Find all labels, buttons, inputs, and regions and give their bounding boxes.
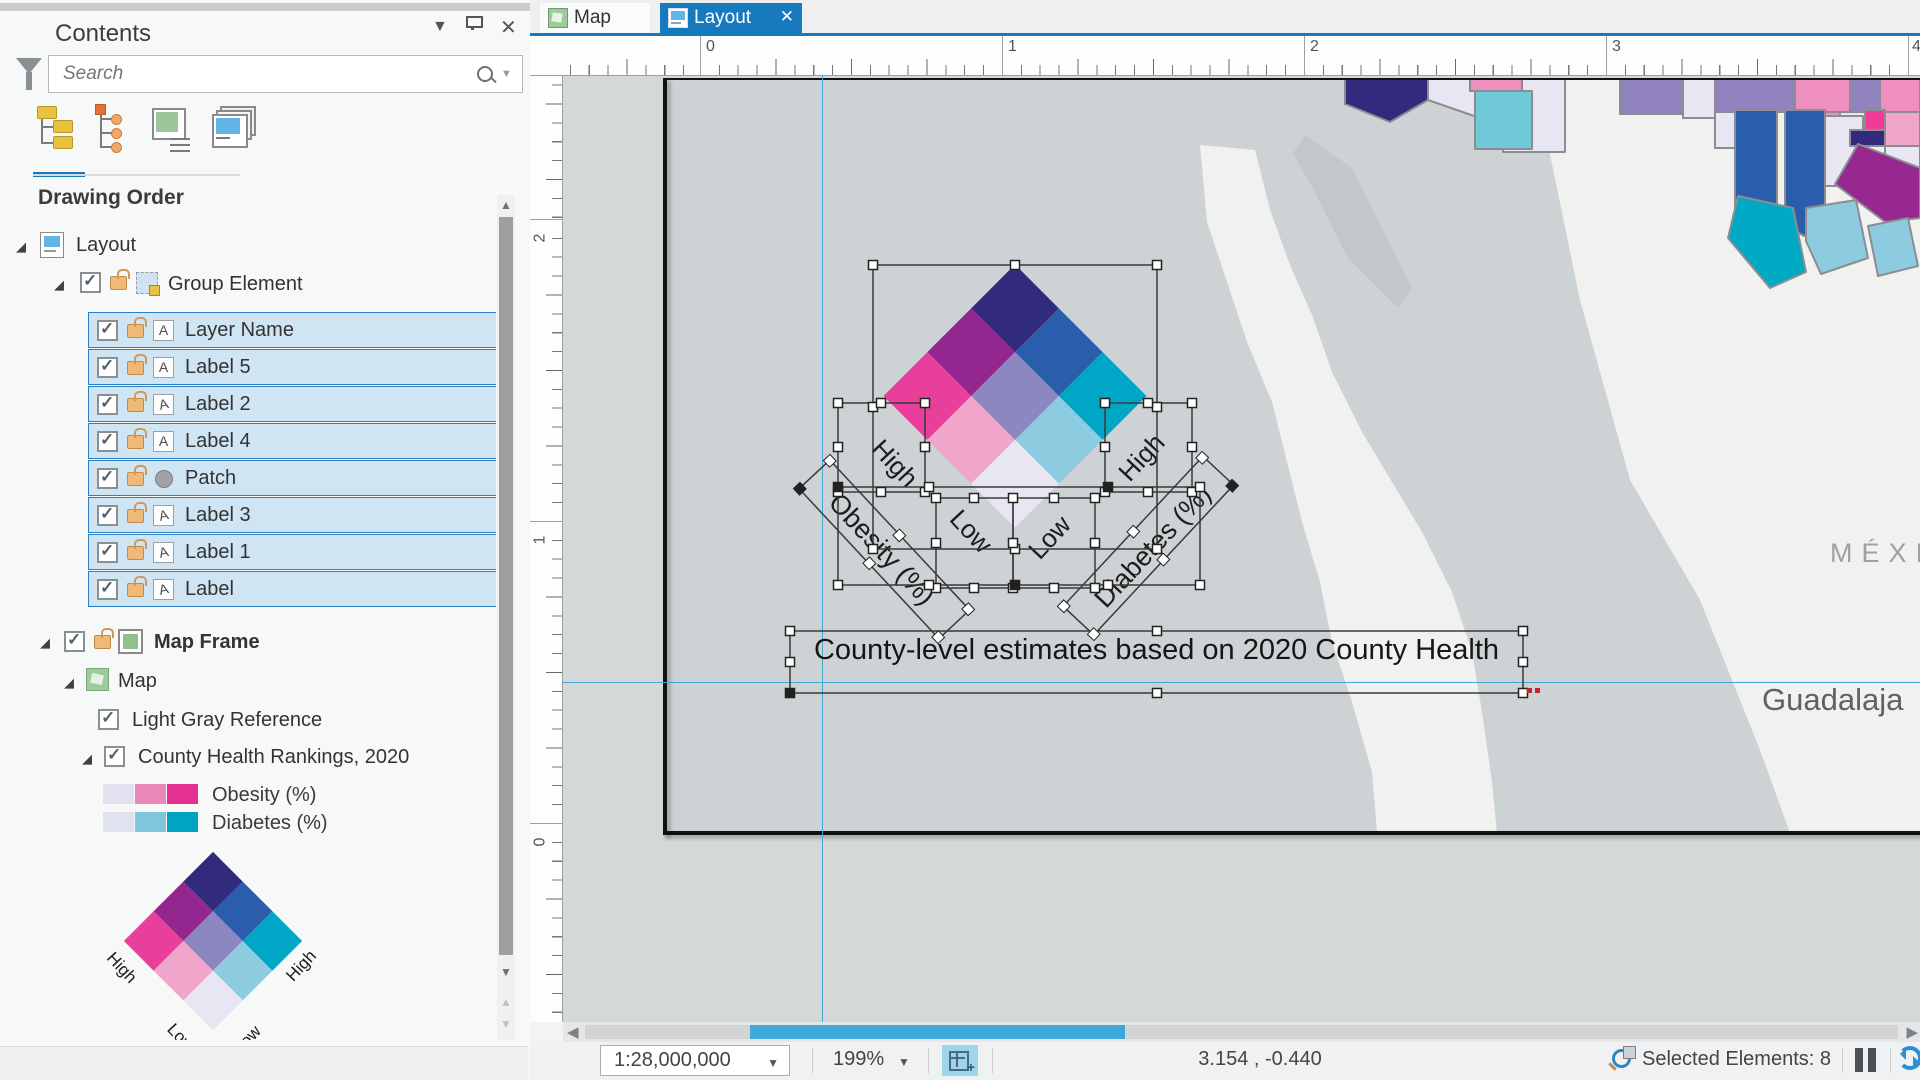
scale-dropdown[interactable]: 1:28,000,000 ▼ — [600, 1045, 790, 1076]
unlock-icon[interactable] — [127, 509, 144, 523]
map-frame-checkbox[interactable] — [64, 631, 85, 652]
tree-item-label[interactable]: Patch — [185, 467, 236, 490]
tree-item-label[interactable]: Label 2 — [185, 393, 251, 416]
diabetes-ramp-swatch — [135, 812, 166, 832]
close-icon[interactable]: ✕ — [500, 18, 517, 38]
scroll-bottom-icon[interactable]: ▼ — [499, 1017, 513, 1031]
mini-legend-low-left: Low — [163, 1020, 199, 1040]
tree-item-label[interactable]: Label 5 — [185, 356, 251, 379]
selected-elements-count[interactable]: Selected Elements: 8 — [1642, 1048, 1831, 1071]
tree-row-label-2[interactable]: A Label 2 — [88, 386, 496, 422]
text-element-icon: A — [153, 431, 174, 452]
diabetes-ramp-swatch — [167, 812, 198, 832]
layer-icon — [37, 106, 57, 119]
tree-row-label-5[interactable]: A Label 5 — [88, 349, 496, 385]
rotated-text-element-icon: A — [153, 394, 174, 415]
zoom-level[interactable]: 199% — [833, 1048, 884, 1071]
expander-icon[interactable]: ◢ — [54, 277, 64, 293]
caption-text-element[interactable]: County-level estimates based on 2020 Cou… — [790, 634, 1523, 667]
tree-item-county-health[interactable]: County Health Rankings, 2020 — [138, 746, 409, 769]
tab-close-icon[interactable]: ✕ — [780, 7, 794, 27]
tree-row-patch[interactable]: Patch — [88, 460, 496, 496]
panel-title: Contents — [55, 20, 151, 48]
view-buttons-divider — [33, 174, 240, 176]
checkbox[interactable] — [97, 579, 118, 600]
chevron-down-icon[interactable]: ▼ — [432, 18, 448, 36]
ruler-number: 0 — [706, 38, 715, 56]
scrollbar-thumb[interactable] — [499, 217, 513, 955]
scroll-up-icon[interactable]: ▲ — [499, 198, 513, 212]
unlock-icon[interactable] — [127, 435, 144, 449]
search-box: ▼ — [48, 55, 523, 93]
ruler-number: 1 — [1008, 38, 1017, 56]
view-tab-bar: Map Layout ✕ — [530, 0, 1920, 33]
chevron-down-icon[interactable]: ▼ — [898, 1055, 910, 1069]
view-source-button[interactable] — [93, 106, 139, 152]
status-bar: 1:28,000,000 ▼ 199% ▼ + 3.154 , -0.440 S… — [530, 1042, 1920, 1080]
unlock-icon[interactable] — [94, 635, 111, 649]
map-frame-border — [663, 78, 1920, 80]
legend-label-obesity: Obesity (%) — [212, 784, 316, 807]
layout-icon — [40, 232, 64, 258]
unlock-icon[interactable] — [110, 276, 127, 290]
group-element-checkbox[interactable] — [80, 272, 101, 293]
patch-element-icon — [155, 470, 173, 488]
search-icon[interactable] — [477, 66, 493, 82]
unlock-icon[interactable] — [127, 361, 144, 375]
county-health-checkbox[interactable] — [104, 746, 125, 767]
legend-label-diabetes: Diabetes (%) — [212, 812, 328, 835]
mini-legend-low-right: Low — [230, 1022, 266, 1040]
tree-item-label[interactable]: Label — [185, 578, 234, 601]
obesity-ramp-swatch — [167, 784, 198, 804]
tree-item-label[interactable]: Label 3 — [185, 504, 251, 527]
rotated-text-element-icon: A — [153, 542, 174, 563]
checkbox[interactable] — [97, 505, 118, 526]
scroll-down-icon[interactable]: ▼ — [499, 965, 513, 979]
tree-item-map[interactable]: Map — [118, 670, 157, 693]
view-drawing-order-button[interactable] — [33, 106, 79, 152]
mini-legend-high-left: High — [102, 948, 140, 987]
ruler-number: 3 — [1612, 38, 1621, 56]
tree-row-label-4[interactable]: A Label 4 — [88, 423, 496, 459]
pause-drawing-button[interactable] — [1855, 1048, 1885, 1072]
scroll-right-icon[interactable]: ▶ — [1906, 1023, 1918, 1041]
layout-guide-vertical[interactable] — [822, 76, 823, 1022]
zoom-to-selection-icon[interactable] — [1612, 1049, 1631, 1068]
cursor-coordinates: 3.154 , -0.440 — [1130, 1048, 1390, 1071]
panel-footer — [0, 1046, 528, 1080]
expander-icon[interactable]: ◢ — [64, 675, 74, 691]
chevron-down-icon[interactable]: ▼ — [767, 1056, 779, 1070]
tree-item-light-gray[interactable]: Light Gray Reference — [132, 709, 322, 732]
tree-row-layer-name[interactable]: A Layer Name — [88, 312, 496, 348]
scale-value: 1:28,000,000 — [614, 1049, 731, 1072]
checkbox[interactable] — [97, 357, 118, 378]
rotated-text-element-icon: A — [153, 579, 174, 600]
horizontal-scrollbar[interactable]: ◀ ▶ — [563, 1022, 1920, 1042]
arcgis-pro-window: Contents ▼ ✕ ▼ — [0, 0, 1920, 1080]
pin-icon[interactable] — [471, 16, 474, 30]
ruler-number: 2 — [531, 234, 549, 243]
tab-label: Layout — [694, 7, 751, 29]
ruler-number: 1 — [531, 536, 549, 545]
drawing-order-heading: Drawing Order — [38, 186, 184, 210]
unlock-icon[interactable] — [127, 398, 144, 412]
unlock-icon[interactable] — [127, 324, 144, 338]
panel-scrollbar[interactable]: ▲ ▼ ▲ ▼ — [497, 195, 515, 1040]
map-label-guadalajara: Guadalaja — [1762, 682, 1904, 717]
diabetes-ramp-swatch — [103, 812, 134, 832]
source-node-icon — [95, 104, 106, 115]
tree-item-group-element[interactable]: Group Element — [168, 273, 303, 296]
scrollbar-track[interactable] — [585, 1025, 1898, 1039]
checkbox[interactable] — [97, 542, 118, 563]
map-frame-icon — [118, 629, 143, 654]
obesity-ramp-swatch — [103, 784, 134, 804]
layout-canvas[interactable]: MÉXI Guadalaja — [563, 76, 1920, 1022]
tab-layout[interactable]: Layout ✕ — [660, 3, 802, 33]
unlock-icon[interactable] — [127, 472, 144, 486]
ruler-number: 2 — [1310, 38, 1319, 56]
tree-item-layout[interactable]: Layout — [76, 234, 136, 257]
map-label-mexico: MÉXI — [1830, 538, 1920, 568]
layout-view-area: Map Layout ✕ 0 1 2 3 4 2 1 — [530, 0, 1920, 1080]
tree-row-label[interactable]: A Label — [88, 571, 496, 607]
checkbox[interactable] — [97, 431, 118, 452]
tree-item-label[interactable]: Label 4 — [185, 430, 251, 453]
layout-guide-horizontal[interactable] — [563, 682, 1920, 683]
map-frame-border — [663, 78, 667, 835]
tree-item-label[interactable]: Label 1 — [185, 541, 251, 564]
scrollbar-thumb[interactable] — [750, 1025, 1125, 1039]
layer-tree: ◢ Layout ◢ Group Element A Layer Name A … — [0, 212, 496, 1040]
layout-tab-icon — [668, 8, 688, 28]
panel-drag-bar[interactable] — [0, 3, 530, 11]
rotated-text-element-icon: A — [153, 505, 174, 526]
ruler-number: 0 — [531, 838, 549, 847]
light-gray-checkbox[interactable] — [98, 709, 119, 730]
tree-row-label-3[interactable]: A Label 3 — [88, 497, 496, 533]
expander-icon[interactable]: ◢ — [16, 239, 26, 255]
text-element-icon: A — [153, 320, 174, 341]
search-input[interactable] — [61, 60, 465, 88]
group-element-icon — [136, 272, 158, 294]
scroll-left-icon[interactable]: ◀ — [567, 1023, 579, 1041]
tree-item-label[interactable]: Layer Name — [185, 319, 294, 342]
refresh-icon[interactable] — [1898, 1046, 1920, 1070]
vertical-ruler: 2 1 0 — [530, 76, 563, 1022]
checkbox[interactable] — [97, 468, 118, 489]
ruler-number: 4 — [1912, 38, 1920, 56]
unlock-icon[interactable] — [127, 583, 144, 597]
expander-icon[interactable]: ◢ — [82, 751, 92, 767]
view-selection-button[interactable] — [150, 106, 196, 152]
tree-item-map-frame[interactable]: Map Frame — [154, 631, 260, 654]
text-element-icon: A — [153, 357, 174, 378]
expander-icon[interactable]: ◢ — [40, 635, 50, 651]
map-frame-border — [663, 831, 1920, 835]
scroll-top-icon[interactable]: ▲ — [499, 995, 513, 1009]
tab-label: Map — [574, 7, 611, 29]
obesity-ramp-swatch — [135, 784, 166, 804]
contents-panel: Contents ▼ ✕ ▼ — [0, 0, 532, 1080]
checkbox[interactable] — [97, 320, 118, 341]
layout-grid-button[interactable]: + — [942, 1045, 978, 1076]
map-tab-icon — [548, 8, 568, 28]
ruler-corner — [530, 36, 563, 76]
search-dropdown-icon[interactable]: ▼ — [501, 68, 512, 80]
bivariate-legend-preview — [124, 852, 302, 1030]
tab-map[interactable]: Map — [540, 3, 650, 33]
filter-icon[interactable] — [16, 58, 42, 74]
unlock-icon[interactable] — [127, 546, 144, 560]
checkbox[interactable] — [97, 394, 118, 415]
view-layout-list-button[interactable] — [212, 106, 258, 152]
horizontal-ruler: 0 1 2 3 4 — [563, 36, 1920, 76]
map-frame-content: MÉXI Guadalaja — [563, 76, 1920, 1022]
map-icon — [86, 668, 109, 691]
tree-row-label-1[interactable]: A Label 1 — [88, 534, 496, 570]
